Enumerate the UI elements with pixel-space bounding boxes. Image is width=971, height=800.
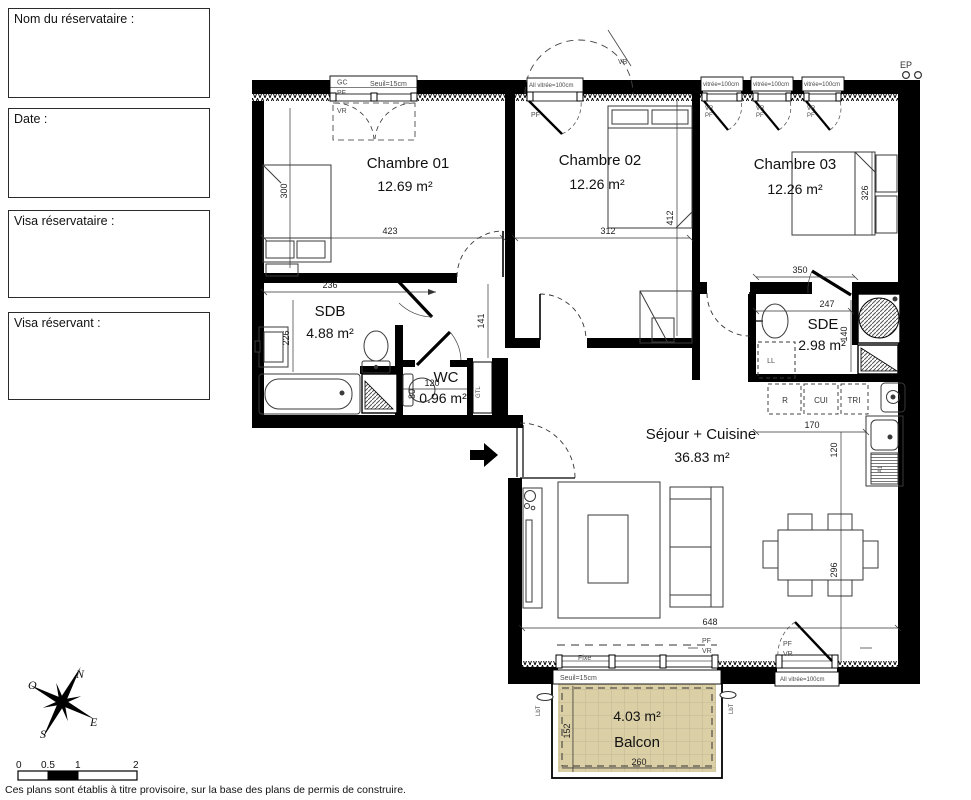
- window-chambre03b-vr-label: VR: [756, 106, 765, 112]
- window-chambre03a-vr-label: VR: [705, 106, 714, 112]
- chambre03-area: 12.26 m²: [767, 181, 823, 197]
- window-chambre03b-vitree-label: vitrée=100cm: [753, 82, 789, 88]
- technical-shaft: [858, 345, 898, 374]
- dim-141: 141: [476, 313, 486, 328]
- dim-423: 423: [382, 226, 397, 236]
- window-chambre03c-pf-label: PF: [807, 113, 815, 119]
- kitchen-cui-label: CUI: [814, 396, 828, 405]
- sde-name: SDE: [808, 316, 839, 333]
- window-chambre03a-pf-label: PF: [705, 113, 713, 119]
- window-chambre02-vitree-label: All vitrée=100cm: [529, 83, 574, 89]
- kitchen-r-label: R: [782, 396, 788, 405]
- shower: [858, 294, 900, 343]
- bed-chambre01: [263, 165, 331, 276]
- chambre03-name: Chambre 03: [754, 156, 837, 173]
- windows-chambre03: vitrée=100cm VR PF vitrée=100cm VR PF vi…: [701, 77, 844, 130]
- window-chambre03c-vr-label: VR: [807, 106, 816, 112]
- window-chambre03b-pf-label: PF: [756, 113, 764, 119]
- balcony-seuil-label: Seuil=15cm: [560, 675, 597, 682]
- dim-236: 236: [322, 280, 337, 290]
- balcony-name: Balcon: [614, 734, 660, 751]
- scale-tick-05: 0.5: [41, 760, 55, 771]
- compass-east-label: E: [89, 715, 98, 729]
- dim-300: 300: [279, 183, 289, 198]
- right-window-vr-label: VR: [783, 651, 793, 658]
- gtl-label: GTL: [476, 386, 482, 398]
- dim-296: 296: [829, 562, 839, 577]
- ep-label: EP: [900, 60, 912, 70]
- sejour-name: Séjour + Cuisine: [646, 426, 756, 443]
- window-chambre01-vr-label: VR: [337, 108, 347, 115]
- interior-walls: [264, 94, 898, 415]
- window-chambre02-pf-label: PF: [531, 112, 540, 119]
- chambre01-name: Chambre 01: [367, 155, 450, 172]
- dim-152: 152: [562, 723, 572, 738]
- wardrobe-chambre02: [640, 291, 692, 343]
- slider-fixe-label: Fixe: [578, 655, 591, 662]
- sdb-area: 4.88 m²: [306, 325, 354, 341]
- scale-bar: 0 0.5 1 2: [16, 760, 139, 780]
- dim-170: 170: [804, 420, 819, 430]
- compass-rose: N O E S: [28, 667, 98, 741]
- bathtub: [259, 374, 360, 414]
- dim-648: 648: [702, 617, 717, 627]
- balcony-pin-right-label: LbT: [729, 703, 735, 714]
- water-heater: [362, 374, 397, 413]
- window-chambre03a-vitree-label: vitrée=100cm: [703, 82, 739, 88]
- scale-tick-2: 2: [133, 760, 139, 771]
- wc-name: WC: [434, 369, 459, 386]
- kitchen-sink: [866, 416, 903, 486]
- wc-area: 0.96 m²: [419, 390, 467, 406]
- balcony: Seuil=15cm 4.03 m² Balcon LbT LbT 152 26…: [536, 670, 736, 778]
- floor-plan-sheet: Nom du réservataire : Date : Visa réserv…: [0, 0, 971, 800]
- doors: [399, 231, 851, 478]
- window-chambre03c-vitree-label: vitrée=100cm: [804, 82, 840, 88]
- chambre02-area: 12.26 m²: [569, 176, 625, 192]
- sde-washbasin: [756, 304, 788, 338]
- compass-south-label: S: [40, 727, 46, 741]
- dim-412: 412: [665, 210, 675, 225]
- footer-disclaimer: Ces plans sont établis à titre provisoir…: [5, 784, 406, 796]
- window-chambre01-gc-label: GC: [337, 80, 348, 87]
- sink-a1-label: A1: [878, 465, 884, 473]
- balcony-pin-left-label: LbT: [536, 705, 542, 716]
- chambre02-name: Chambre 02: [559, 152, 642, 169]
- sde-washing-machine: [758, 342, 795, 378]
- compass-west-label: O: [28, 678, 37, 692]
- dim-120-kitchen: 120: [829, 442, 839, 457]
- dim-247: 247: [819, 299, 834, 309]
- sde-area: 2.98 m²: [798, 337, 846, 353]
- window-chambre02-vb-label: VB: [618, 59, 628, 66]
- window-chambre01: GC Seuil=15cm PF VR: [330, 76, 417, 140]
- balcony-area: 4.03 m²: [613, 708, 661, 724]
- tv-unit: [523, 488, 542, 608]
- sejour-area: 36.83 m²: [674, 449, 730, 465]
- scale-tick-1: 1: [75, 760, 81, 771]
- sofa: [670, 487, 723, 607]
- chambre01-area: 12.69 m²: [377, 178, 433, 194]
- scale-tick-0: 0: [16, 760, 22, 771]
- rug: [558, 482, 660, 618]
- sdb-name: SDB: [315, 303, 346, 320]
- slider-pf-label: PF: [702, 638, 711, 645]
- entry-arrow-icon: [470, 443, 498, 467]
- dim-260: 260: [631, 757, 646, 767]
- ll-label: LL: [767, 358, 775, 365]
- kitchen-tri-label: TRI: [848, 396, 861, 405]
- floor-plan-drawing: GC Seuil=15cm PF VR All vitrée=100cm PF …: [0, 0, 971, 800]
- ep-downspout: EP: [900, 60, 921, 78]
- balcony-slider-window: Fixe PF VR: [556, 638, 718, 668]
- dining-table: [763, 514, 878, 596]
- dim-326: 326: [860, 185, 870, 200]
- right-window-pf-label: PF: [783, 641, 792, 648]
- dim-80: 80: [407, 389, 417, 399]
- right-window-vitree-label: All vitrée=100cm: [780, 677, 825, 683]
- window-chambre01-seuil-label: Seuil=15cm: [370, 81, 407, 88]
- slider-vr-label: VR: [702, 648, 712, 655]
- dim-226: 226: [281, 330, 291, 345]
- dim-312: 312: [600, 226, 615, 236]
- dim-350: 350: [792, 265, 807, 275]
- compass-north-label: N: [75, 667, 85, 681]
